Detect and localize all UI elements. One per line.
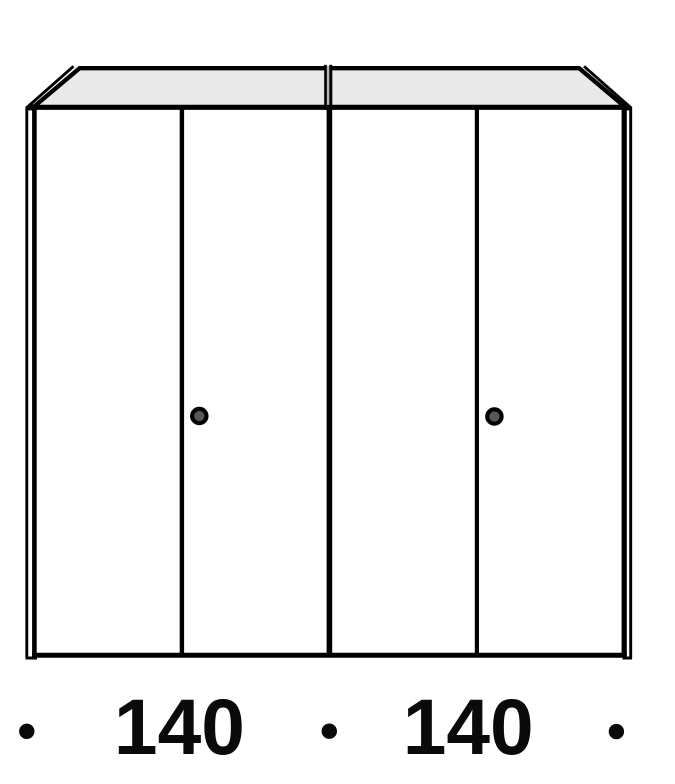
svg-text:140: 140 [114,683,245,771]
svg-text:140: 140 [403,683,534,771]
